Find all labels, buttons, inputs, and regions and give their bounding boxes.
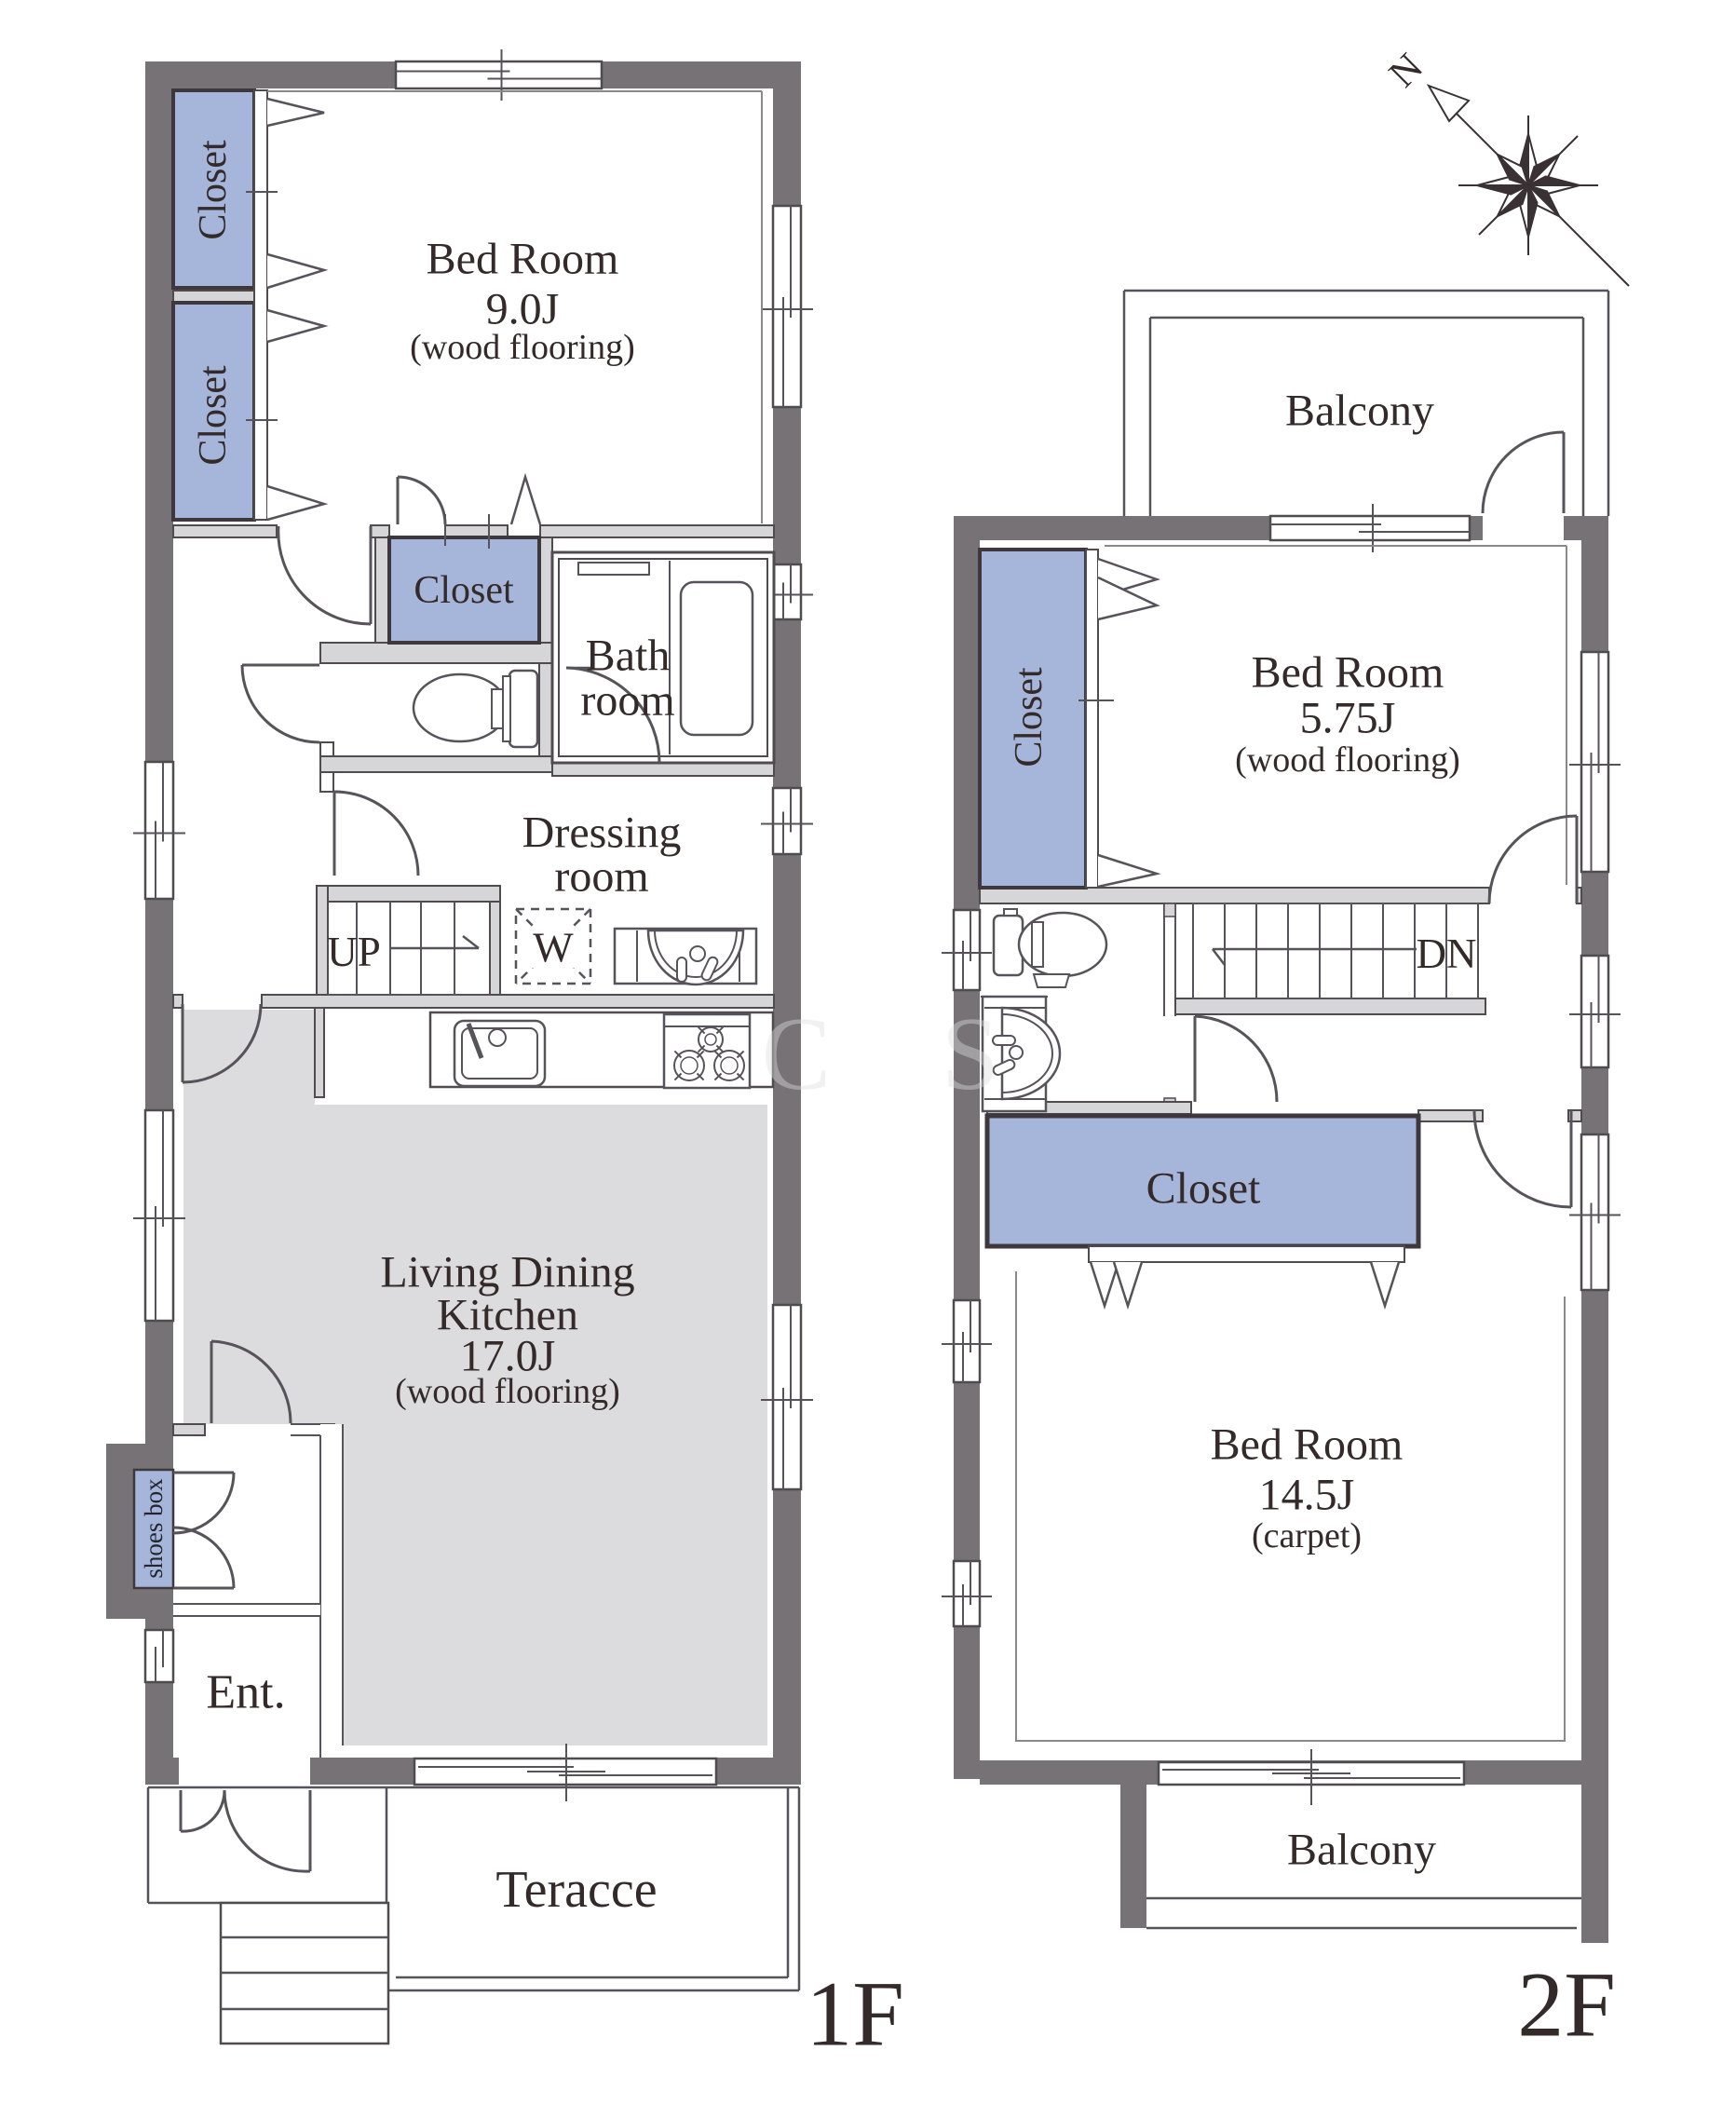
svg-text:W: W: [533, 924, 574, 971]
svg-text:Bath: Bath: [586, 631, 671, 681]
svg-text:9.0J: 9.0J: [486, 285, 560, 334]
svg-text:2F: 2F: [1517, 1953, 1616, 2057]
svg-text:(carpet): (carpet): [1252, 1516, 1362, 1555]
svg-text:Dressing: Dressing: [522, 808, 682, 858]
svg-text:Closet: Closet: [1008, 667, 1051, 767]
svg-text:S: S: [942, 997, 999, 1112]
svg-text:(wood flooring): (wood flooring): [1235, 740, 1460, 780]
svg-text:5.75J: 5.75J: [1300, 694, 1396, 743]
svg-text:(wood flooring): (wood flooring): [410, 328, 635, 367]
svg-text:Closet: Closet: [1146, 1164, 1261, 1214]
svg-text:Bed Room: Bed Room: [427, 235, 619, 284]
svg-text:Teracce: Teracce: [495, 1861, 657, 1919]
svg-text:C: C: [762, 997, 832, 1112]
svg-text:room: room: [554, 852, 648, 902]
svg-text:Closet: Closet: [192, 365, 235, 466]
svg-text:Bed Room: Bed Room: [1211, 1420, 1404, 1470]
svg-text:Closet: Closet: [414, 569, 514, 612]
svg-text:(wood flooring): (wood flooring): [395, 1372, 620, 1411]
svg-text:Ent.: Ent.: [206, 1666, 285, 1719]
svg-text:DN: DN: [1417, 930, 1477, 977]
svg-text:UP: UP: [327, 929, 381, 975]
svg-text:14.5J: 14.5J: [1259, 1471, 1355, 1520]
svg-text:Closet: Closet: [192, 140, 235, 240]
svg-text:room: room: [580, 676, 674, 726]
svg-text:shoes box: shoes box: [140, 1478, 168, 1579]
svg-text:Balcony: Balcony: [1287, 1826, 1436, 1875]
svg-text:1F: 1F: [806, 1962, 904, 2066]
svg-text:Bed Room: Bed Room: [1252, 648, 1444, 698]
svg-text:Balcony: Balcony: [1285, 387, 1434, 436]
